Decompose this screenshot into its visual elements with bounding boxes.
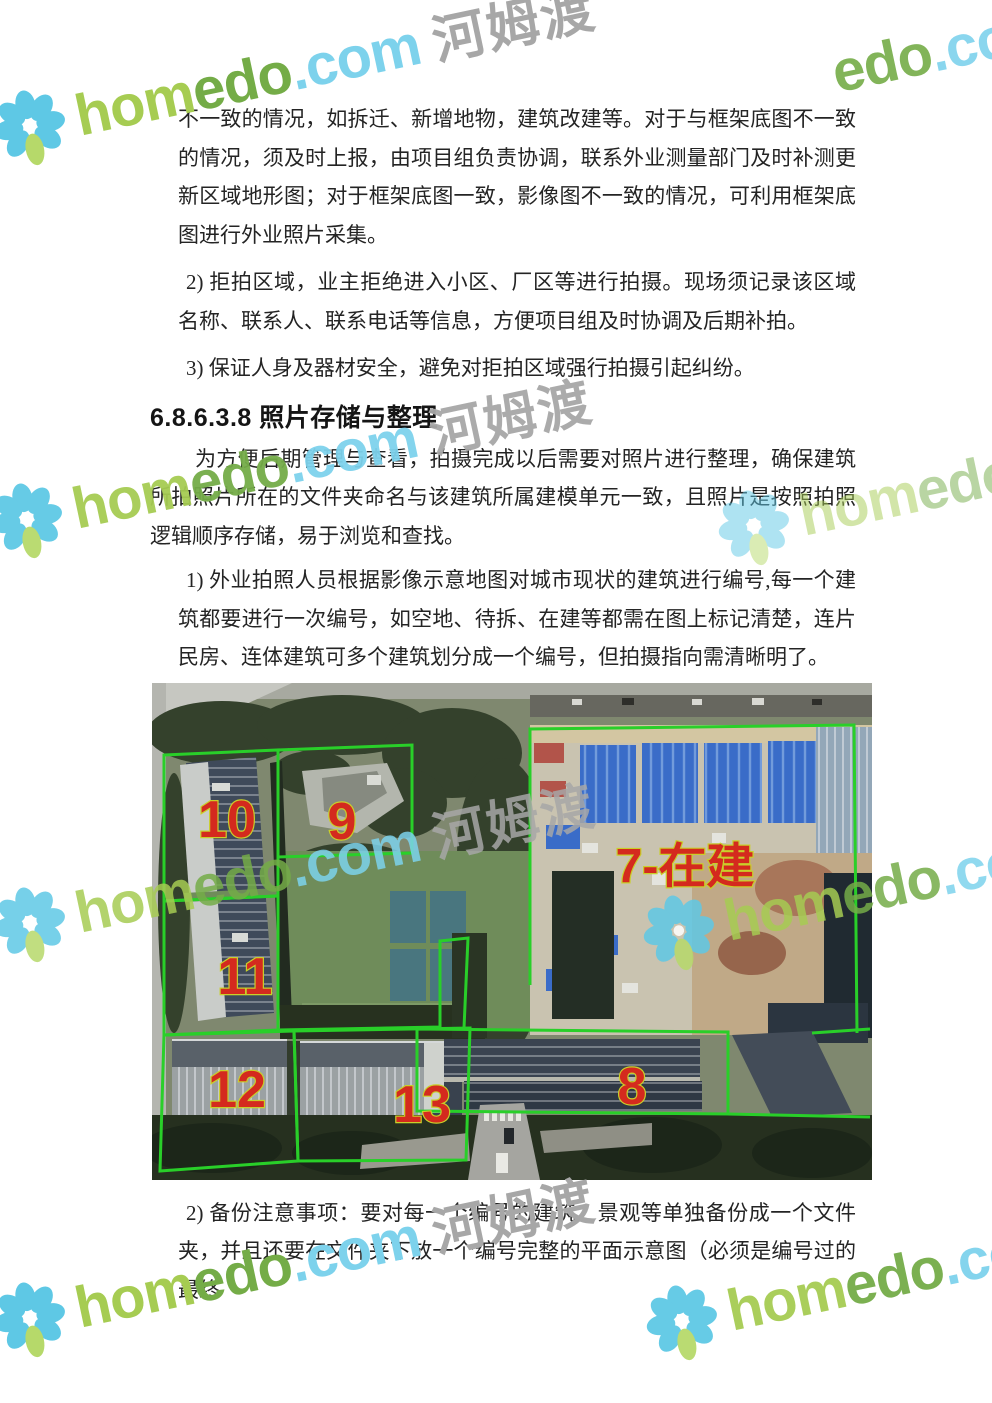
paragraph-photo-organizing: 为方便后期管理与查看，拍摄完成以后需要对照片进行整理，确保建筑所拍照片所在的文件… <box>150 440 856 556</box>
building-number-label: 11 <box>218 948 273 1006</box>
homedo-flower-icon <box>0 875 76 973</box>
paragraph-item-2-refused-areas: 2) 拒拍区域，业主拒绝进入小区、厂区等进行拍摄。现场须记录该区域名称、联系人、… <box>150 263 856 340</box>
paragraph-item-2-backup-notes: 2) 备份注意事项：要对每一个编号的建筑、景观等单独备份成一个文件夹，并且还要在… <box>150 1194 856 1310</box>
building-number-label: 12 <box>208 1061 266 1119</box>
section-heading: 6.8.6.3.8 照片存储与整理 <box>150 398 856 434</box>
paragraph-item-3-safety: 3) 保证人身及器材安全，避免对拒拍区域强行拍摄引起纠纷。 <box>150 349 856 388</box>
building-number-label: 7-在建 <box>616 840 755 893</box>
document-content: 不一致的情况，如拆迁、新增地物，建筑改建等。对于与框架底图不一致的情况，须及时上… <box>150 0 856 1309</box>
homedo-flower-icon <box>0 78 76 176</box>
document-page: 不一致的情况，如拆迁、新增地物，建筑改建等。对于与框架底图不一致的情况，须及时上… <box>0 0 992 1403</box>
paragraph-item-1-numbering: 1) 外业拍照人员根据影像示意地图对城市现状的建筑进行编号,每一个建筑都要进行一… <box>150 561 856 677</box>
satellite-map: 1097-在建1112138 <box>152 683 872 1180</box>
paragraph-photo-collection: 不一致的情况，如拆迁、新增地物，建筑改建等。对于与框架底图不一致的情况，须及时上… <box>150 100 856 254</box>
homedo-flower-icon <box>0 471 73 569</box>
satellite-map-figure: 1097-在建1112138 <box>152 683 872 1180</box>
building-number-label: 13 <box>393 1076 451 1134</box>
building-number-label: 9 <box>328 793 357 851</box>
building-number-label: 10 <box>198 791 256 849</box>
building-number-label: 8 <box>618 1058 647 1116</box>
homedo-flower-icon <box>0 1270 76 1368</box>
